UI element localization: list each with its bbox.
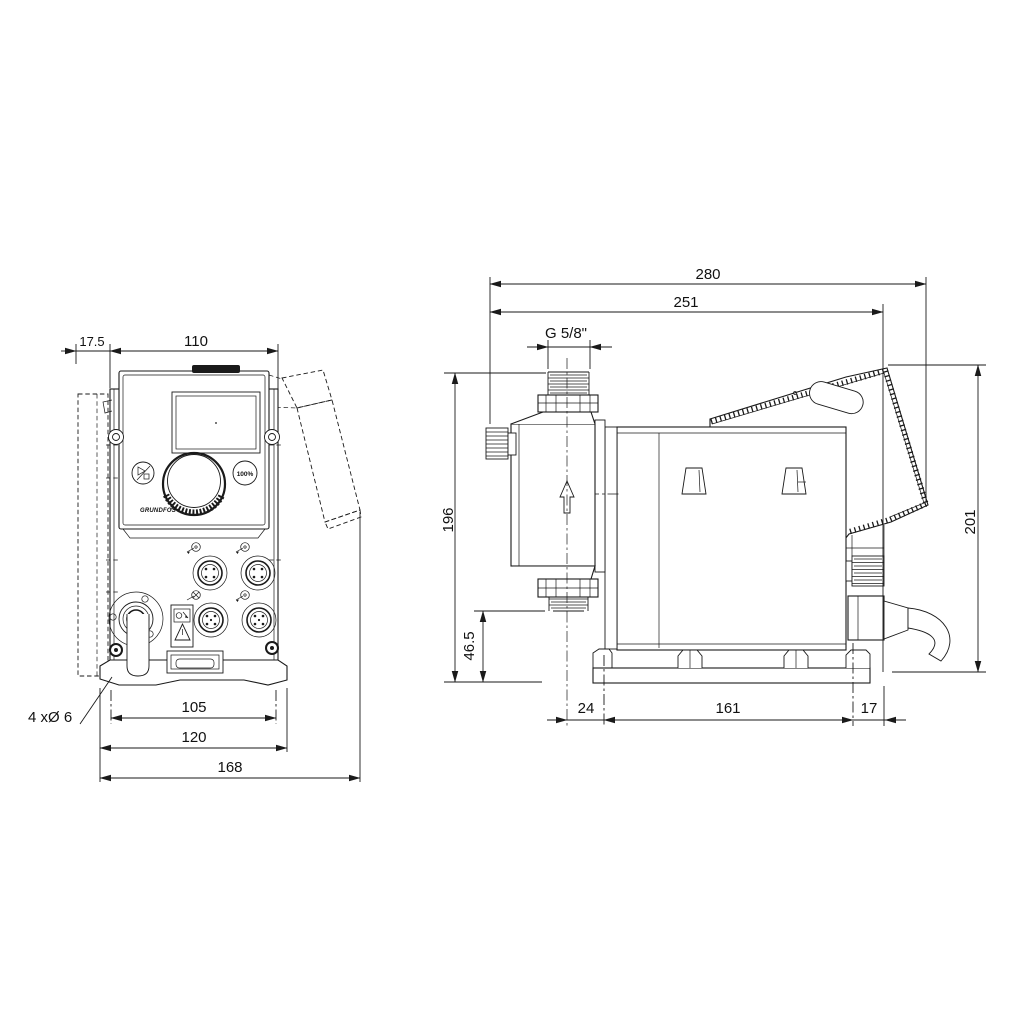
dim-overall-width-value: 168 bbox=[217, 759, 242, 776]
dim-inlet-height-value: 196 bbox=[440, 507, 457, 532]
motor-housing bbox=[617, 427, 846, 650]
brand-logo-text: GRUNDFOS bbox=[140, 508, 176, 514]
m12-connector bbox=[242, 603, 276, 637]
mounting-clip bbox=[682, 468, 706, 494]
cube-latch bbox=[192, 365, 240, 373]
dim-bracket-depth: 17.5 bbox=[61, 334, 110, 364]
dim-housing-width-value: 110 bbox=[184, 333, 208, 350]
vent-valve-knob bbox=[486, 428, 516, 459]
dim-front-offset-value: 24 bbox=[578, 700, 595, 717]
manual-warning-label bbox=[171, 605, 193, 647]
click-wheel-knob bbox=[163, 453, 225, 515]
technical-drawing: 100% GRUNDFOS bbox=[0, 0, 1024, 1024]
capacity-button: 100% bbox=[233, 461, 257, 485]
dim-hole-spacing: 105 bbox=[111, 690, 276, 724]
dim-overall-depth-value: 280 bbox=[695, 266, 720, 283]
dim-hole-spacing-value: 105 bbox=[181, 699, 206, 716]
capacity-button-label: 100% bbox=[237, 471, 254, 478]
dim-base-length-value: 161 bbox=[715, 700, 740, 717]
dim-rear-offset: 17 bbox=[853, 700, 906, 720]
dim-bracket-depth-value: 17.5 bbox=[79, 334, 104, 349]
dim-front-offset: 24 bbox=[547, 700, 604, 720]
power-cable bbox=[908, 608, 950, 661]
drain-tube bbox=[127, 614, 149, 676]
conduit-thread bbox=[846, 556, 884, 586]
control-cube-front: 100% GRUNDFOS bbox=[119, 365, 269, 538]
dosing-head bbox=[486, 372, 598, 611]
dim-inlet-clearance-value: 46.5 bbox=[461, 631, 478, 660]
dim-panel-depth-value: 251 bbox=[673, 294, 698, 311]
dim-thread-value: G 5/8" bbox=[545, 325, 587, 342]
suction-valve bbox=[538, 579, 598, 611]
wall-bracket-hidden bbox=[78, 394, 108, 676]
m12-connector bbox=[194, 603, 228, 637]
dim-plate-width-value: 120 bbox=[181, 729, 206, 746]
discharge-valve bbox=[538, 372, 598, 412]
dim-thread: G 5/8" bbox=[527, 325, 612, 369]
start-stop-button bbox=[132, 462, 154, 484]
dim-base-length: 161 bbox=[604, 700, 853, 720]
dim-overall-height-value: 201 bbox=[962, 509, 979, 534]
front-view: 100% GRUNDFOS bbox=[28, 333, 361, 782]
mounting-holes-note-value: 4 xØ 6 bbox=[28, 709, 72, 726]
side-view: 280 251 G 5/8" 196 46.5 bbox=[440, 266, 986, 726]
base-plate-side bbox=[593, 649, 870, 683]
dim-rear-offset-value: 17 bbox=[861, 700, 878, 717]
dim-inlet-clearance: 46.5 bbox=[461, 611, 545, 682]
mounting-clip bbox=[782, 468, 806, 494]
control-cube-hidden-position bbox=[269, 370, 361, 529]
mounting-holes-note: 4 xØ 6 bbox=[28, 677, 112, 726]
